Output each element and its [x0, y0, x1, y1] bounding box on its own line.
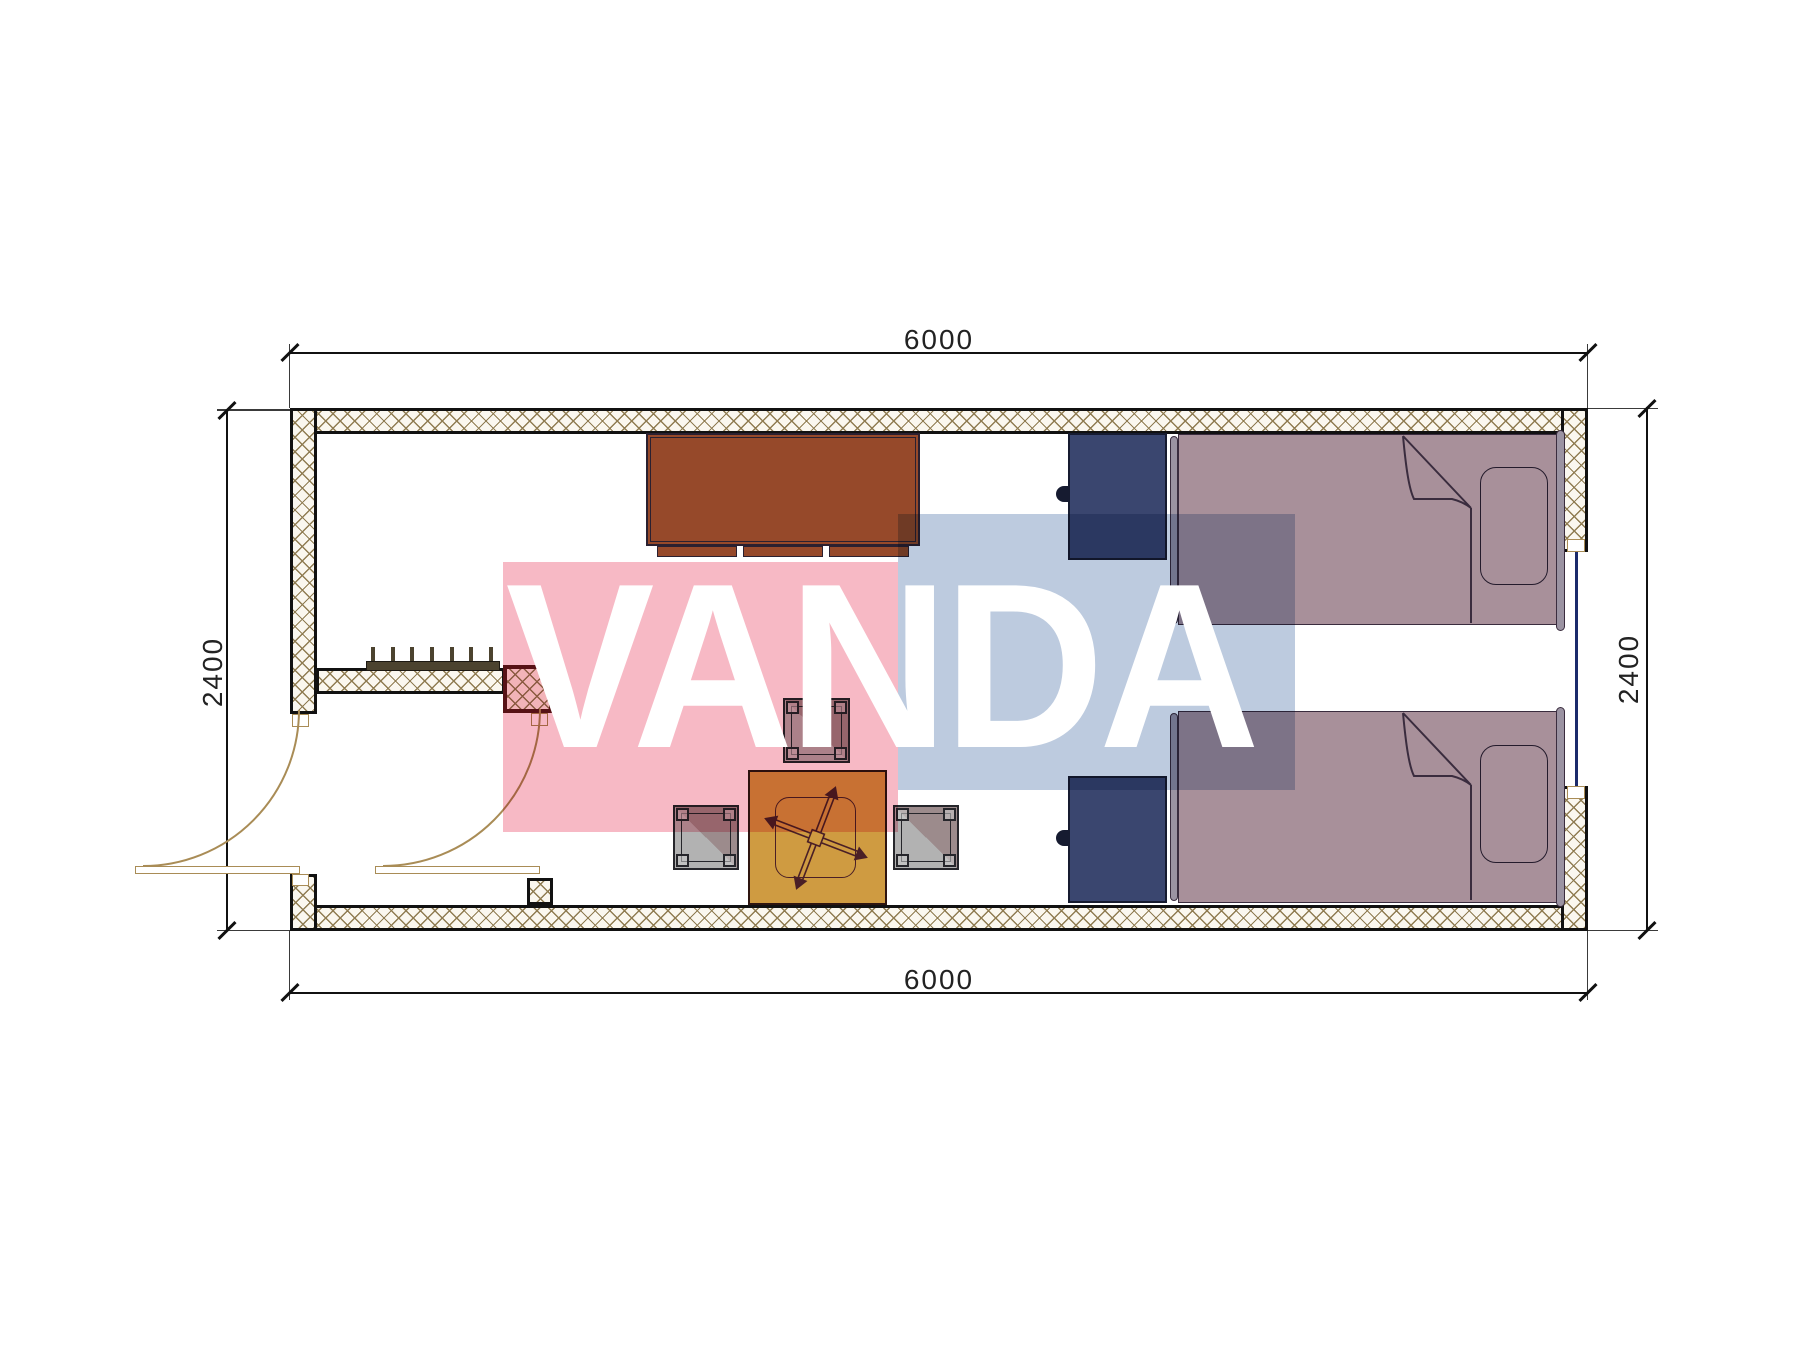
floorplan-canvas: 6000 6000 2400 2400	[0, 0, 1800, 1350]
bed-blanket-fold	[1403, 436, 1471, 623]
watermark-logo-text: VANDA	[500, 555, 1260, 775]
bed-blanket-fold	[1403, 713, 1471, 900]
entry-door-swing-arc	[143, 710, 299, 866]
